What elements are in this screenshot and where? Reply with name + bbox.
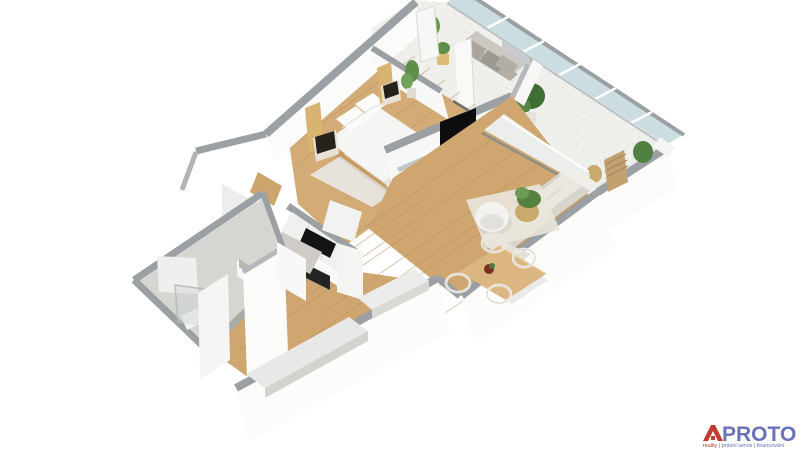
svg-text:reality | právní servis | fina: reality | právní servis | financování bbox=[703, 443, 785, 449]
